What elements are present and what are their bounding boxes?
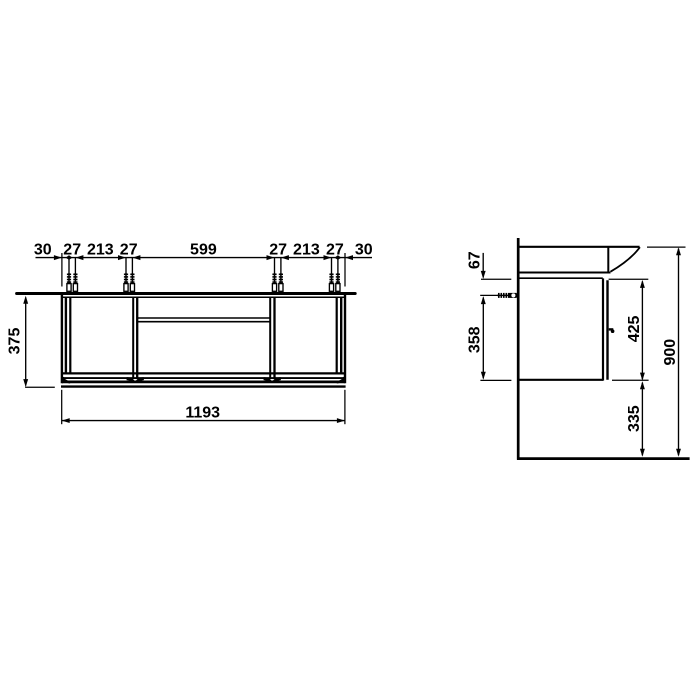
svg-text:900: 900	[662, 339, 679, 366]
svg-text:335: 335	[626, 405, 643, 432]
svg-text:67: 67	[467, 251, 484, 269]
svg-text:27: 27	[269, 242, 287, 259]
svg-text:27: 27	[326, 242, 344, 259]
svg-text:1193: 1193	[185, 405, 220, 422]
svg-text:30: 30	[34, 242, 52, 259]
svg-text:213: 213	[87, 242, 114, 259]
svg-text:27: 27	[120, 242, 138, 259]
svg-text:30: 30	[355, 242, 373, 259]
svg-text:599: 599	[190, 242, 217, 259]
svg-text:27: 27	[63, 242, 81, 259]
svg-text:213: 213	[293, 242, 320, 259]
svg-text:358: 358	[466, 326, 483, 353]
svg-text:425: 425	[626, 315, 643, 342]
svg-text:375: 375	[7, 328, 24, 355]
